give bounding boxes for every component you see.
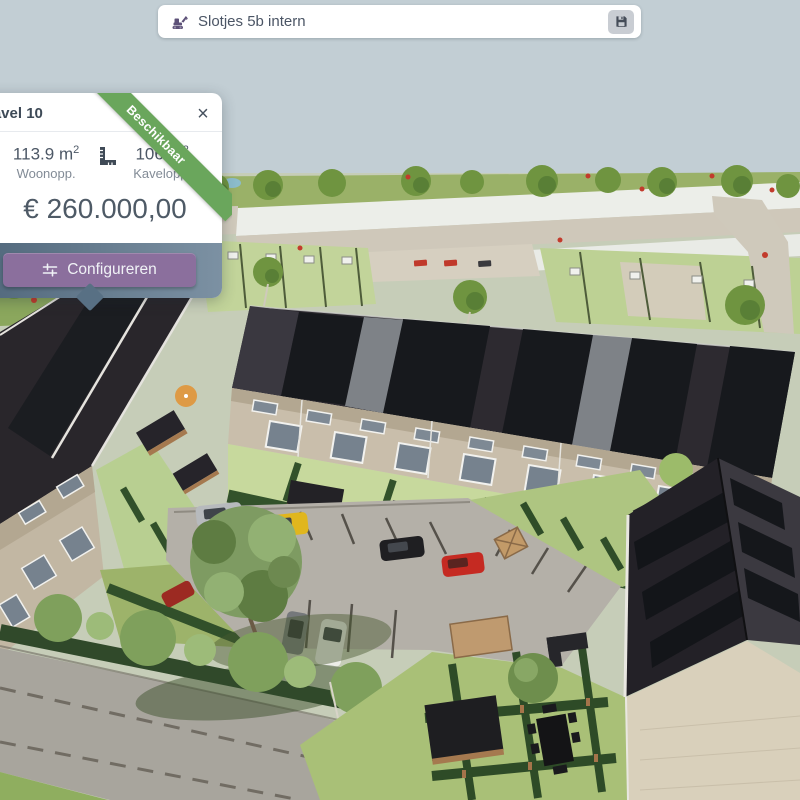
foreground-house[interactable] (625, 458, 800, 800)
ruler-icon (95, 146, 117, 168)
configure-button-label: Configureren (67, 261, 157, 279)
kavel-title: Kavel 10 (0, 105, 202, 122)
metric-woonoppervlak: 113.9 m2 Woonopp. (13, 144, 79, 181)
metric-label: Kavelopp. (133, 166, 191, 181)
sliders-icon (42, 263, 58, 277)
price: € 260.000,00 (0, 183, 222, 243)
card-footer: Configureren (0, 243, 222, 298)
metric-label: Woonopp. (13, 166, 79, 181)
save-button[interactable] (608, 10, 634, 34)
configure-button[interactable]: Configureren (3, 253, 196, 287)
close-icon[interactable]: × (190, 101, 216, 127)
kavel-metrics: 113.9 m2 Woonopp. 106 m2 Kavelopp. (0, 132, 222, 183)
floppy-disk-icon (615, 15, 628, 28)
metric-kaveloppervlak: 106 m2 Kavelopp. (133, 144, 191, 181)
excavator-icon (171, 13, 189, 31)
project-title: Slotjes 5b intern (198, 13, 608, 30)
kavel-info-card: Beschikbaar × Kavel 10 113.9 m2 Woonopp.… (0, 93, 222, 298)
project-title-bar[interactable]: Slotjes 5b intern (158, 5, 641, 38)
